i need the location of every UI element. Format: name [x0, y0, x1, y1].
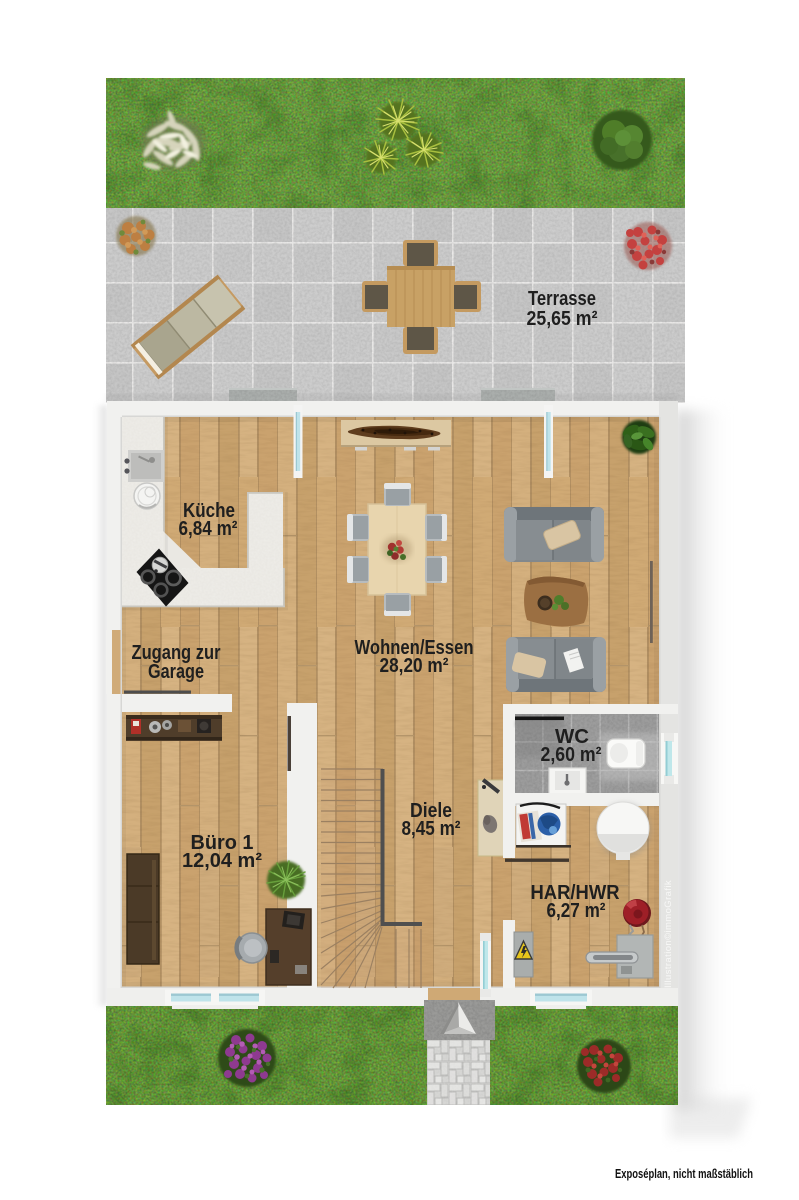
svg-text:6,84 m²: 6,84 m²	[179, 518, 238, 540]
svg-text:25,65 m²: 25,65 m²	[527, 307, 598, 330]
svg-text:Illustration©immoGrafik: Illustration©immoGrafik	[663, 880, 674, 988]
svg-text:6,27 m²: 6,27 m²	[547, 900, 606, 922]
svg-text:12,04 m²: 12,04 m²	[182, 850, 262, 872]
svg-text:8,45 m²: 8,45 m²	[402, 818, 461, 840]
svg-text:2,60 m²: 2,60 m²	[541, 744, 602, 766]
svg-text:Exposéplan, nicht maßstäblich: Exposéplan, nicht maßstäblich	[615, 1166, 753, 1181]
svg-text:Garage: Garage	[148, 661, 204, 683]
svg-text:28,20 m²: 28,20 m²	[380, 655, 449, 677]
